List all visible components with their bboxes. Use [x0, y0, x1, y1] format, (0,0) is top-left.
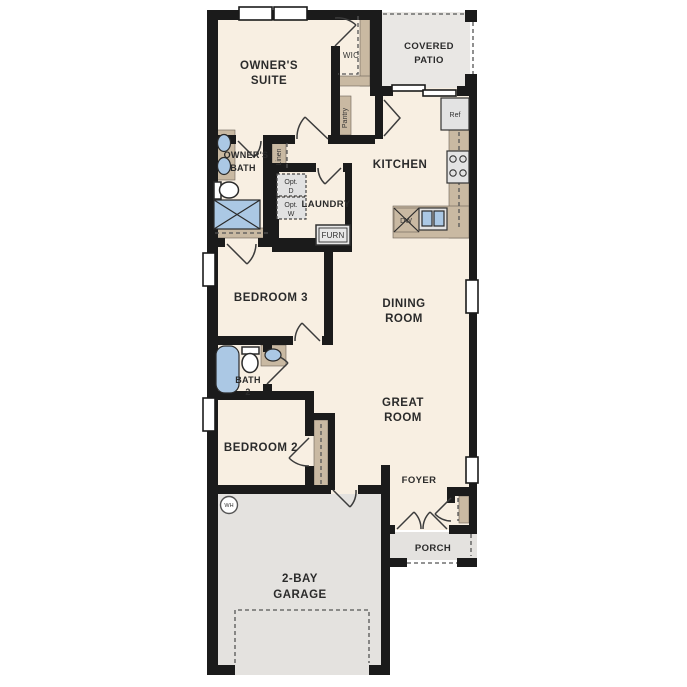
bath2-tub-icon — [216, 346, 239, 393]
furnace-label: FURN — [321, 231, 344, 240]
bedroom2-label: BEDROOM 2 — [224, 442, 298, 454]
garage-label-1: 2-BAY — [282, 573, 318, 585]
garage-door-opening-floor — [235, 665, 369, 675]
floor-plan-page: OWNER'S SUITE WIC COVERED PATIO Pantry R… — [0, 0, 687, 687]
patio-post-bottom-right — [465, 74, 477, 86]
patio-post-top-right — [465, 10, 477, 22]
bath2-sink — [265, 349, 281, 361]
wic-shelf-right — [360, 16, 370, 86]
pantry-label: Pantry — [342, 107, 349, 128]
opt-dryer-label-2: D — [288, 188, 293, 195]
owners-bath-sink-2 — [218, 158, 231, 175]
porch-label: PORCH — [415, 543, 451, 554]
owners-suite-window-2 — [274, 7, 307, 20]
foyer-window — [466, 457, 478, 483]
bedroom2-window — [203, 398, 215, 431]
bedroom3-window — [203, 253, 215, 286]
water-heater-label: WH — [224, 503, 233, 509]
bath2-label-2: 2 — [245, 387, 250, 397]
great-room-label-1: GREAT — [382, 397, 424, 409]
owners-bath-sink-1 — [218, 135, 231, 152]
wic-shelf-bottom — [337, 76, 370, 86]
foyer-label: FOYER — [402, 475, 437, 486]
opt-washer-label-2: W — [288, 211, 295, 218]
opt-dryer-label-1: Opt. — [284, 179, 297, 186]
bedroom3-label: BEDROOM 3 — [234, 292, 308, 304]
great-room-label-2: ROOM — [384, 412, 422, 424]
linen-label: Linen — [276, 148, 283, 165]
owners-bath-label-1: OWNER'S — [224, 150, 269, 160]
covered-patio-label-2: PATIO — [414, 55, 444, 66]
patio-slider-panel-2 — [423, 90, 456, 96]
kitchen-label: KITCHEN — [373, 159, 428, 171]
stove-icon — [447, 151, 469, 183]
owners-suite-label-2: SUITE — [251, 75, 287, 87]
owners-bath-label-2: BATH — [230, 163, 256, 173]
laundry-label: LAUNDRY — [302, 199, 351, 210]
opt-washer-label-1: Opt. — [284, 202, 297, 209]
wic-label: WIC — [343, 51, 359, 60]
floor-plan-drawing: OWNER'S SUITE WIC COVERED PATIO Pantry R… — [0, 0, 687, 687]
owners-suite-label-1: OWNER'S — [240, 60, 298, 72]
foyer-closet-shelf — [459, 496, 469, 523]
bath2-toilet-bowl — [242, 354, 258, 373]
patio-slider-panel-1 — [392, 85, 425, 91]
bath2-label-1: BATH — [235, 375, 261, 385]
covered-patio-label-1: COVERED — [404, 41, 454, 52]
dining-room-label-1: DINING — [382, 298, 425, 310]
garage-label-2: GARAGE — [273, 589, 326, 601]
owners-bath-toilet-bowl — [220, 182, 239, 198]
dishwasher-label: DW — [400, 218, 412, 225]
refrigerator-label: Ref — [450, 112, 461, 119]
owners-suite-window-1 — [239, 7, 272, 20]
dining-room-label-2: ROOM — [385, 313, 423, 325]
dining-window — [466, 280, 478, 313]
